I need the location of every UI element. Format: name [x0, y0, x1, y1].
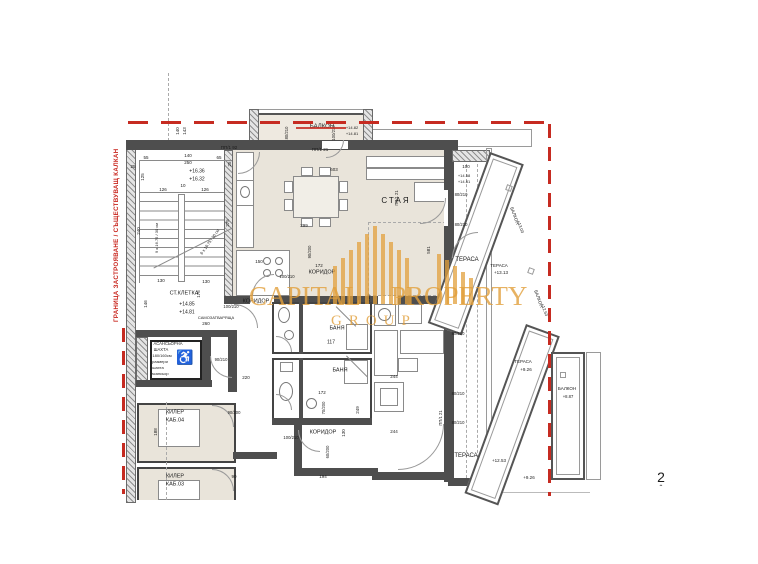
plan-annotation: +13.03 [516, 220, 524, 234]
edge-outline [586, 352, 601, 480]
plan-annotation: 176 [197, 290, 202, 298]
door-arc [398, 424, 444, 470]
shower-tray [344, 360, 368, 384]
chair [284, 181, 293, 193]
boundary-label: ГРАНИЦА ЗАСТРОЯВАНЕ / СЪЩЕСТВУВАЩ КАЛКАН [113, 127, 120, 322]
centerline [166, 402, 167, 500]
balcony-strip [464, 324, 559, 505]
balcony-strip [551, 352, 585, 480]
plan-annotation: БАЛКОН [509, 207, 519, 226]
plan-annotation: +16.36 [189, 170, 204, 175]
chair [301, 167, 313, 176]
closet-shelf [158, 409, 200, 447]
counter [400, 330, 444, 354]
bathtub [346, 324, 368, 350]
balcony-pier [363, 109, 373, 144]
cabinet [398, 358, 418, 372]
stove-burner [275, 257, 283, 265]
chair [339, 199, 348, 211]
room-zone-dashed [368, 222, 446, 296]
floor-plan-page: ♿ [0, 0, 758, 564]
bath-divider [299, 302, 303, 354]
balcony-pier [249, 109, 259, 144]
plan-annotation: ТЕРАСА [490, 264, 508, 269]
vent-symbol [560, 372, 566, 378]
wall [372, 472, 454, 480]
wall [294, 468, 378, 476]
plan-annotation: 250 [184, 161, 192, 166]
boundary-line-left [122, 328, 125, 494]
plan-annotation: СТ.КЛЕТКА [170, 291, 199, 297]
wall-top [126, 140, 458, 150]
washer-drum [378, 308, 391, 321]
chair [319, 218, 331, 227]
chair [284, 199, 293, 211]
plan-annotation: +14.58 [458, 174, 470, 178]
plan-annotation: ˆ [660, 485, 663, 493]
plan-annotation: +13.13 [494, 271, 508, 276]
party-wall-left [126, 141, 136, 503]
plan-annotation: 140 [176, 127, 181, 135]
stair-stringer [178, 194, 185, 282]
stove-burner [263, 257, 271, 265]
plan-annotation: САМОЗАТВАРЯЩА [198, 316, 234, 320]
sofa [366, 156, 448, 168]
plan-annotation: 143 [183, 127, 188, 135]
plan-annotation: +9.26 [523, 476, 534, 481]
dim-line [139, 160, 232, 161]
chair [301, 218, 313, 227]
plan-annotation: +14.81 [458, 180, 470, 184]
bath-divider [299, 358, 303, 420]
plan-annotation: +16.32 [189, 178, 204, 183]
dining-table [293, 176, 339, 218]
wheelchair-icon: ♿ [176, 350, 193, 364]
plan-annotation: 2 [657, 470, 665, 484]
plan-annotation: 244 [390, 430, 398, 435]
sink-basin [240, 186, 250, 198]
cabinet [374, 330, 398, 376]
plan-annotation: 260 [202, 322, 210, 327]
balcony-top-floor [256, 113, 368, 142]
cabinet [398, 304, 422, 324]
stove-burner [275, 269, 283, 277]
sink-basin [306, 398, 317, 409]
terrace-pier [452, 150, 490, 162]
plan-annotation: +12.53 [540, 303, 548, 317]
wall [272, 418, 372, 425]
plan-annotation: +14.81 [179, 311, 194, 316]
plan-annotation: 220 [242, 376, 250, 381]
vent-symbol [527, 267, 535, 275]
plan-annotation: 130 [342, 429, 347, 437]
plan-annotation: 125 [141, 173, 146, 181]
plan-annotation: 146 [144, 300, 149, 308]
balcony-inner-edge [471, 330, 554, 499]
door-arc [452, 232, 478, 258]
plan-annotation: БАЛКОН [533, 290, 543, 309]
plan-annotation: 60/200 [326, 446, 330, 459]
toilet [278, 307, 290, 323]
door-arc [210, 356, 232, 378]
chair [319, 167, 331, 176]
plan-annotation: 10 [180, 184, 185, 189]
elevator-wall [136, 337, 148, 383]
sofa [366, 168, 448, 180]
wall [233, 452, 277, 459]
door-arc [234, 304, 258, 328]
plan-annotation: +14.85 [179, 303, 194, 308]
door-opening [378, 296, 398, 304]
chair [339, 181, 348, 193]
door-opening [250, 296, 274, 304]
elevator-wall [136, 380, 212, 387]
closet-shelf [158, 480, 200, 500]
appliance [380, 388, 398, 406]
centerline [168, 73, 169, 141]
wall-landing [136, 330, 236, 337]
sink-basin [280, 362, 293, 372]
plan-annotation: 140 [184, 154, 192, 159]
